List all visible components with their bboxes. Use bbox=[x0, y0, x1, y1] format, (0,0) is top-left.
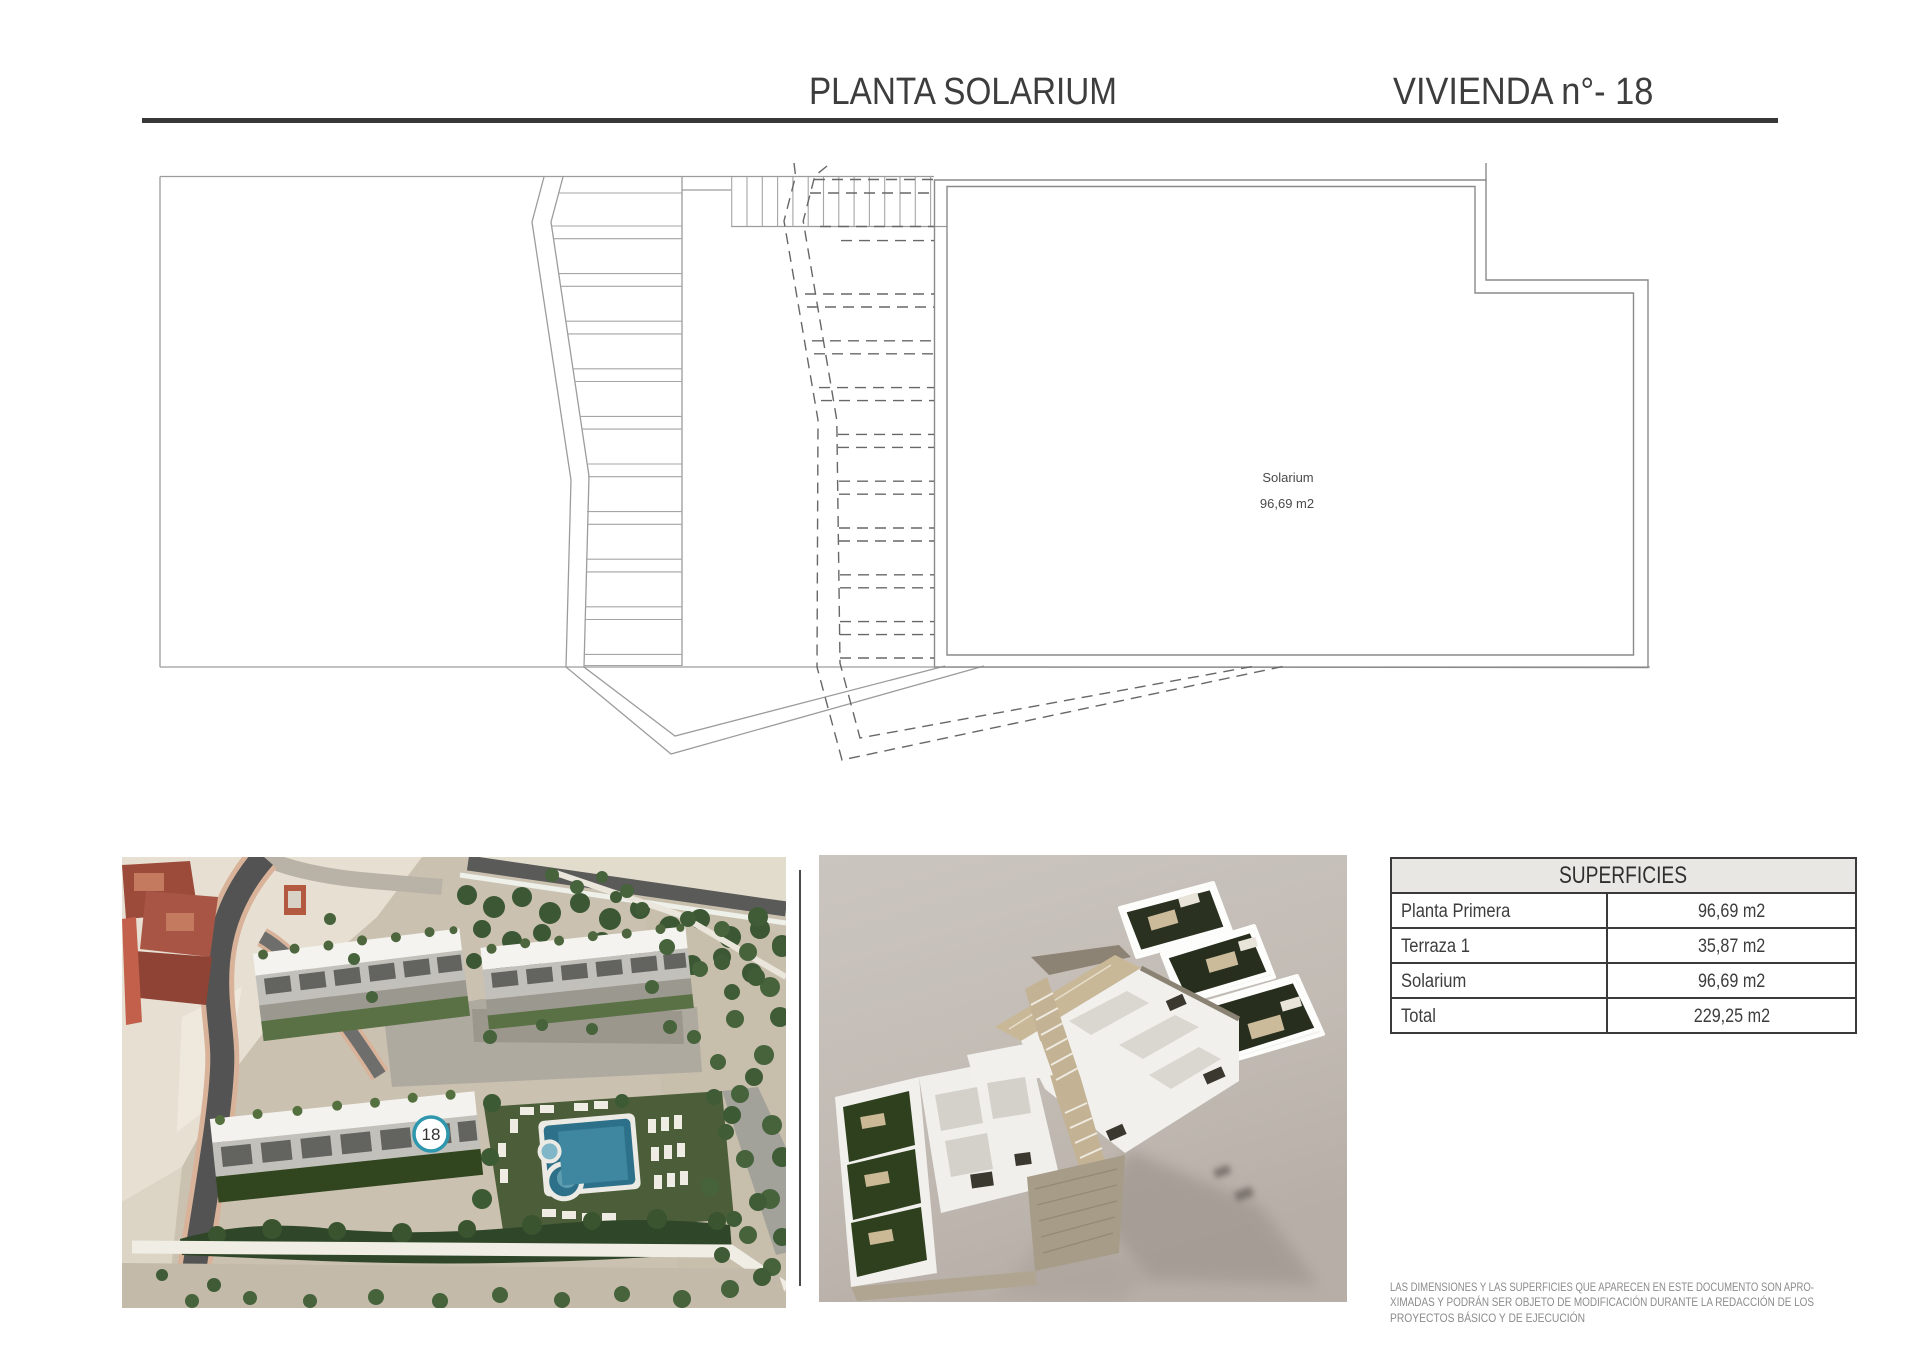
svg-text:18: 18 bbox=[422, 1125, 441, 1144]
svg-text:96,69 m2: 96,69 m2 bbox=[1260, 496, 1314, 511]
svg-text:Solarium: Solarium bbox=[1262, 470, 1313, 485]
